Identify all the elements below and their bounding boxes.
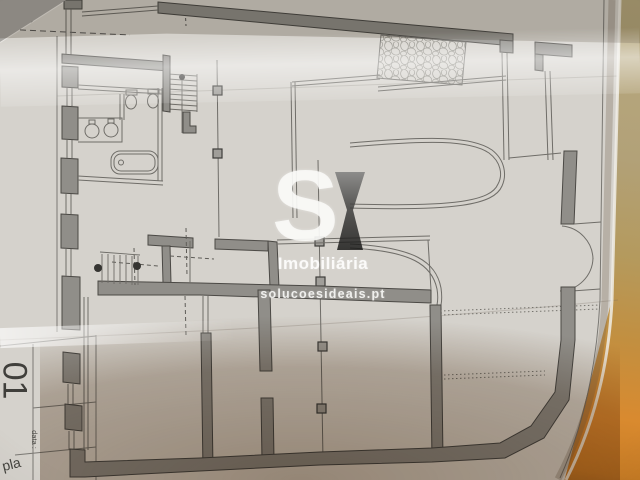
toilet bbox=[148, 89, 160, 108]
bathroom bbox=[78, 85, 163, 185]
top-exterior-wall bbox=[64, 0, 513, 46]
terrace-lines bbox=[66, 6, 158, 56]
date-label: data : bbox=[23, 419, 45, 459]
floorplan-drawing bbox=[0, 0, 640, 480]
paper-edge bbox=[558, 0, 620, 480]
stair-walls bbox=[163, 55, 196, 133]
date-label-text: data : bbox=[29, 430, 38, 449]
drawing-label-text: pla bbox=[0, 454, 22, 474]
sink bbox=[104, 119, 118, 137]
floorplan-photo: corte 01 data : pla S Imobiliária soluco… bbox=[0, 0, 640, 480]
top-right-wall-stubs bbox=[500, 40, 572, 71]
right-wall-door bbox=[560, 151, 601, 291]
window-lines bbox=[66, 88, 74, 450]
sheet-number: 01 bbox=[0, 354, 35, 406]
bathtub bbox=[111, 151, 158, 174]
dotted-guides bbox=[440, 305, 600, 379]
paper-creases bbox=[0, 76, 618, 340]
sheet-number-text: 01 bbox=[0, 361, 33, 399]
drawing-label: pla bbox=[2, 456, 21, 474]
curved-walls bbox=[350, 138, 505, 305]
sink bbox=[85, 120, 99, 138]
sheet-border bbox=[0, 0, 604, 480]
stone-hatch-patch bbox=[377, 35, 466, 85]
